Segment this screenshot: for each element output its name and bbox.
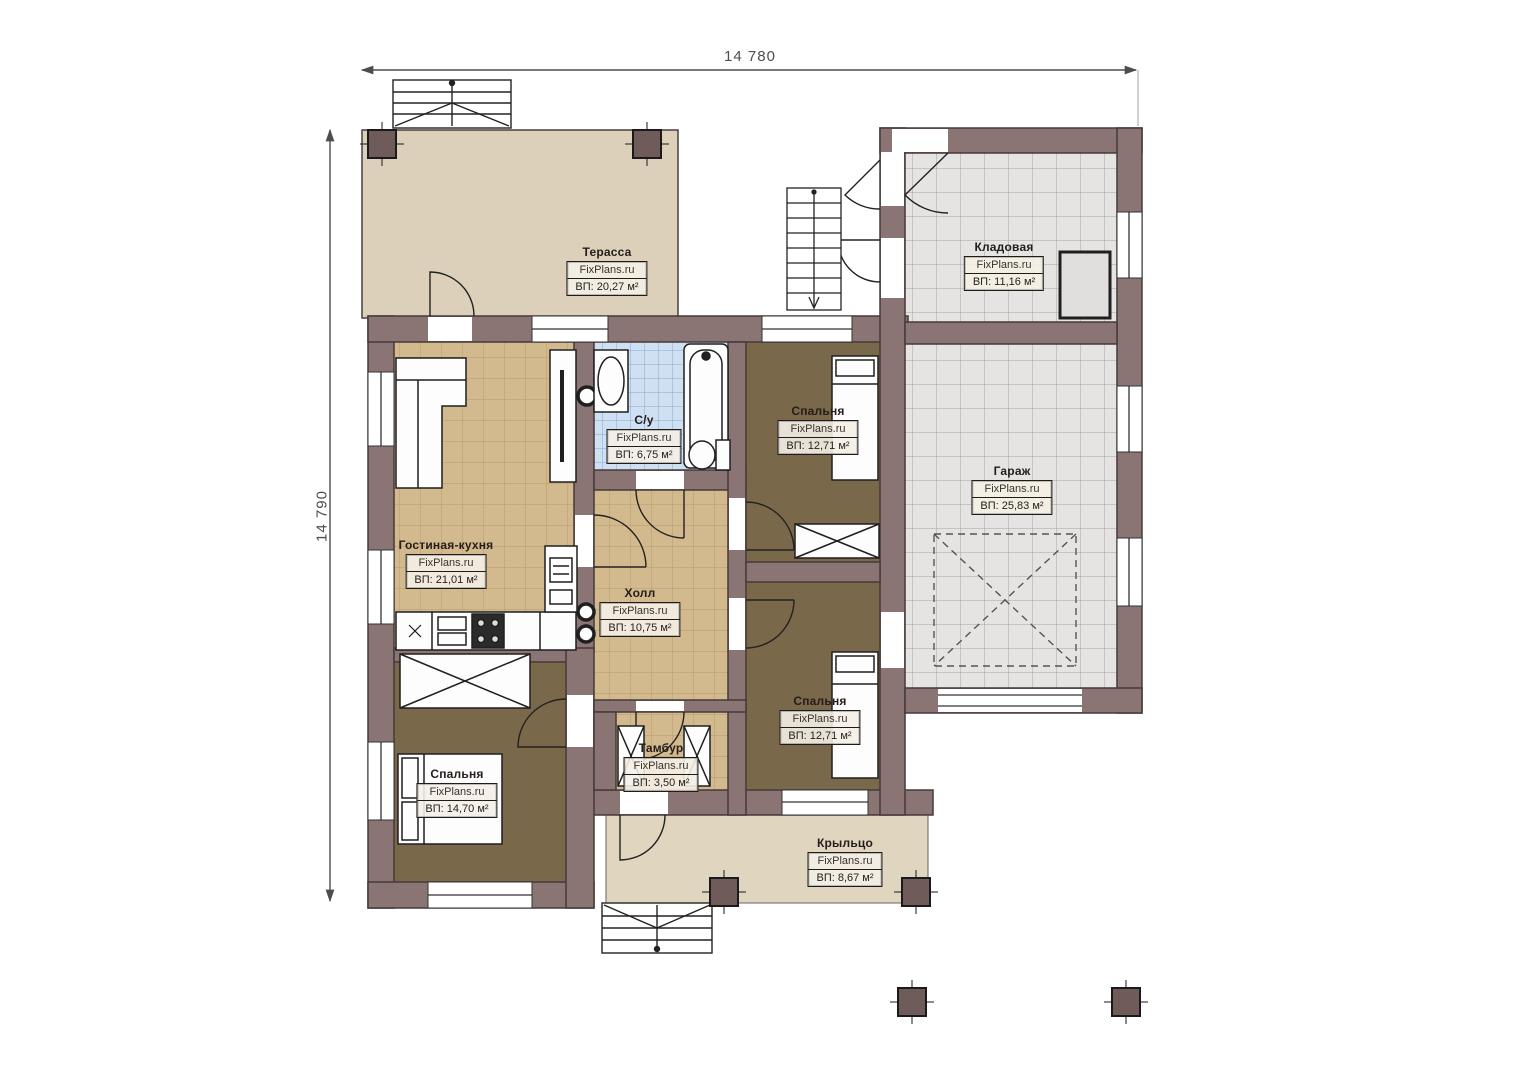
room-name: Спальня — [777, 404, 858, 418]
room-name: Спальня — [416, 767, 497, 781]
floor-plan-drawing — [0, 0, 1528, 1080]
garage-side-door-gap — [881, 612, 904, 668]
window — [368, 742, 394, 820]
watermark: FixPlans.ru — [965, 257, 1043, 274]
room-label-bedroom-top-right: Спальня FixPlans.ru ВП: 12,71 м² — [777, 404, 858, 455]
room-name: Кладовая — [964, 240, 1044, 254]
wardrobe — [400, 654, 530, 708]
watermark: FixPlans.ru — [778, 421, 857, 438]
watermark: FixPlans.ru — [607, 430, 680, 447]
room-label-hall: Холл FixPlans.ru ВП: 10,75 м² — [599, 586, 680, 637]
room-label-tambour: Тамбур FixPlans.ru ВП: 3,50 м² — [623, 741, 698, 792]
room-name: Спальня — [779, 694, 860, 708]
terrace-door-gap — [428, 317, 472, 341]
watermark: FixPlans.ru — [780, 711, 859, 728]
window — [1117, 538, 1142, 606]
window — [1117, 386, 1142, 452]
watermark: FixPlans.ru — [406, 555, 485, 572]
garage-floor — [905, 344, 1117, 688]
room-name: Тамбур — [623, 741, 698, 755]
window — [762, 316, 852, 342]
watermark: FixPlans.ru — [567, 262, 646, 279]
window — [368, 550, 394, 624]
room-label-living-kitchen: Гостиная-кухня FixPlans.ru ВП: 21,01 м² — [399, 538, 494, 589]
room-label-terrace: Терасса FixPlans.ru ВП: 20,27 м² — [566, 245, 647, 296]
room-name: Холл — [599, 586, 680, 600]
floor-plan-page: 14 780 14 790 Терасса FixPlans.ru ВП: 20… — [0, 0, 1528, 1080]
room-label-bedroom-left: Спальня FixPlans.ru ВП: 14,70 м² — [416, 767, 497, 818]
storage-door-arc — [838, 240, 880, 282]
dimension-top-label: 14 780 — [724, 48, 776, 65]
window — [782, 790, 868, 815]
watermark: FixPlans.ru — [808, 853, 881, 870]
oven-unit — [545, 546, 577, 612]
room-label-bathroom: С/у FixPlans.ru ВП: 6,75 м² — [606, 413, 681, 464]
room-name: Терасса — [566, 245, 647, 259]
room-label-bedroom-bottom-right: Спальня FixPlans.ru ВП: 12,71 м² — [779, 694, 860, 745]
room-area: ВП: 10,75 м² — [600, 620, 679, 636]
bathroom-sink — [594, 350, 628, 412]
room-area: ВП: 20,27 м² — [567, 279, 646, 295]
watermark: FixPlans.ru — [600, 603, 679, 620]
toilet — [689, 440, 730, 470]
wall-tambour-left — [594, 712, 616, 790]
lobby-door-arc — [845, 160, 880, 209]
storage-closet — [1060, 252, 1110, 318]
room-area: ВП: 3,50 м² — [624, 775, 697, 791]
watermark: FixPlans.ru — [624, 758, 697, 775]
entrance-door-gap — [620, 791, 668, 814]
tambour-door-gap — [636, 701, 684, 711]
room-name: С/у — [606, 413, 681, 427]
side-stairs — [787, 188, 841, 310]
room-area: ВП: 11,16 м² — [965, 274, 1043, 290]
room-name: Гараж — [971, 464, 1052, 478]
room-area: ВП: 21,01 м² — [406, 572, 485, 588]
wall-storage-garage — [905, 322, 1117, 344]
bedroom-br-door-gap — [729, 598, 745, 650]
window — [428, 882, 532, 908]
terrace-stairs — [393, 80, 511, 128]
bedroom-left-door-gap — [567, 695, 593, 747]
stove — [472, 614, 504, 648]
column — [890, 980, 934, 1024]
window — [532, 316, 608, 342]
window — [368, 372, 394, 446]
column — [1104, 980, 1148, 1024]
porch-stairs — [602, 903, 712, 953]
bathroom-door-gap — [636, 471, 684, 489]
room-area: ВП: 12,71 м² — [778, 438, 857, 454]
wall-wing-left — [880, 128, 905, 815]
kitchen-counter — [396, 612, 576, 650]
window — [1117, 212, 1142, 278]
wall-bedroom-divider — [746, 562, 880, 582]
wing-top-door-gap — [892, 129, 948, 152]
watermark: FixPlans.ru — [972, 481, 1051, 498]
watermark: FixPlans.ru — [417, 784, 496, 801]
wall-bedroom-left-right — [566, 648, 594, 908]
room-label-storage: Кладовая FixPlans.ru ВП: 11,16 м² — [964, 240, 1044, 291]
room-label-garage: Гараж FixPlans.ru ВП: 25,83 м² — [971, 464, 1052, 515]
room-area: ВП: 8,67 м² — [808, 870, 881, 886]
wall-hall-bedrooms — [728, 342, 746, 815]
room-name: Крыльцо — [807, 836, 882, 850]
room-area: ВП: 25,83 м² — [972, 498, 1051, 514]
room-area: ВП: 6,75 м² — [607, 447, 680, 463]
wardrobe — [795, 524, 879, 558]
room-area: ВП: 12,71 м² — [780, 728, 859, 744]
tv-unit — [550, 350, 576, 482]
room-area: ВП: 14,70 м² — [417, 801, 496, 817]
lobby-door-gap — [881, 152, 904, 206]
room-label-porch: Крыльцо FixPlans.ru ВП: 8,67 м² — [807, 836, 882, 887]
room-name: Гостиная-кухня — [399, 538, 494, 552]
garage-gate-gap — [938, 689, 1082, 712]
dimension-left-label: 14 790 — [314, 490, 331, 542]
storage-door-gap — [881, 238, 904, 298]
bedroom-tr-door-gap — [729, 498, 745, 550]
